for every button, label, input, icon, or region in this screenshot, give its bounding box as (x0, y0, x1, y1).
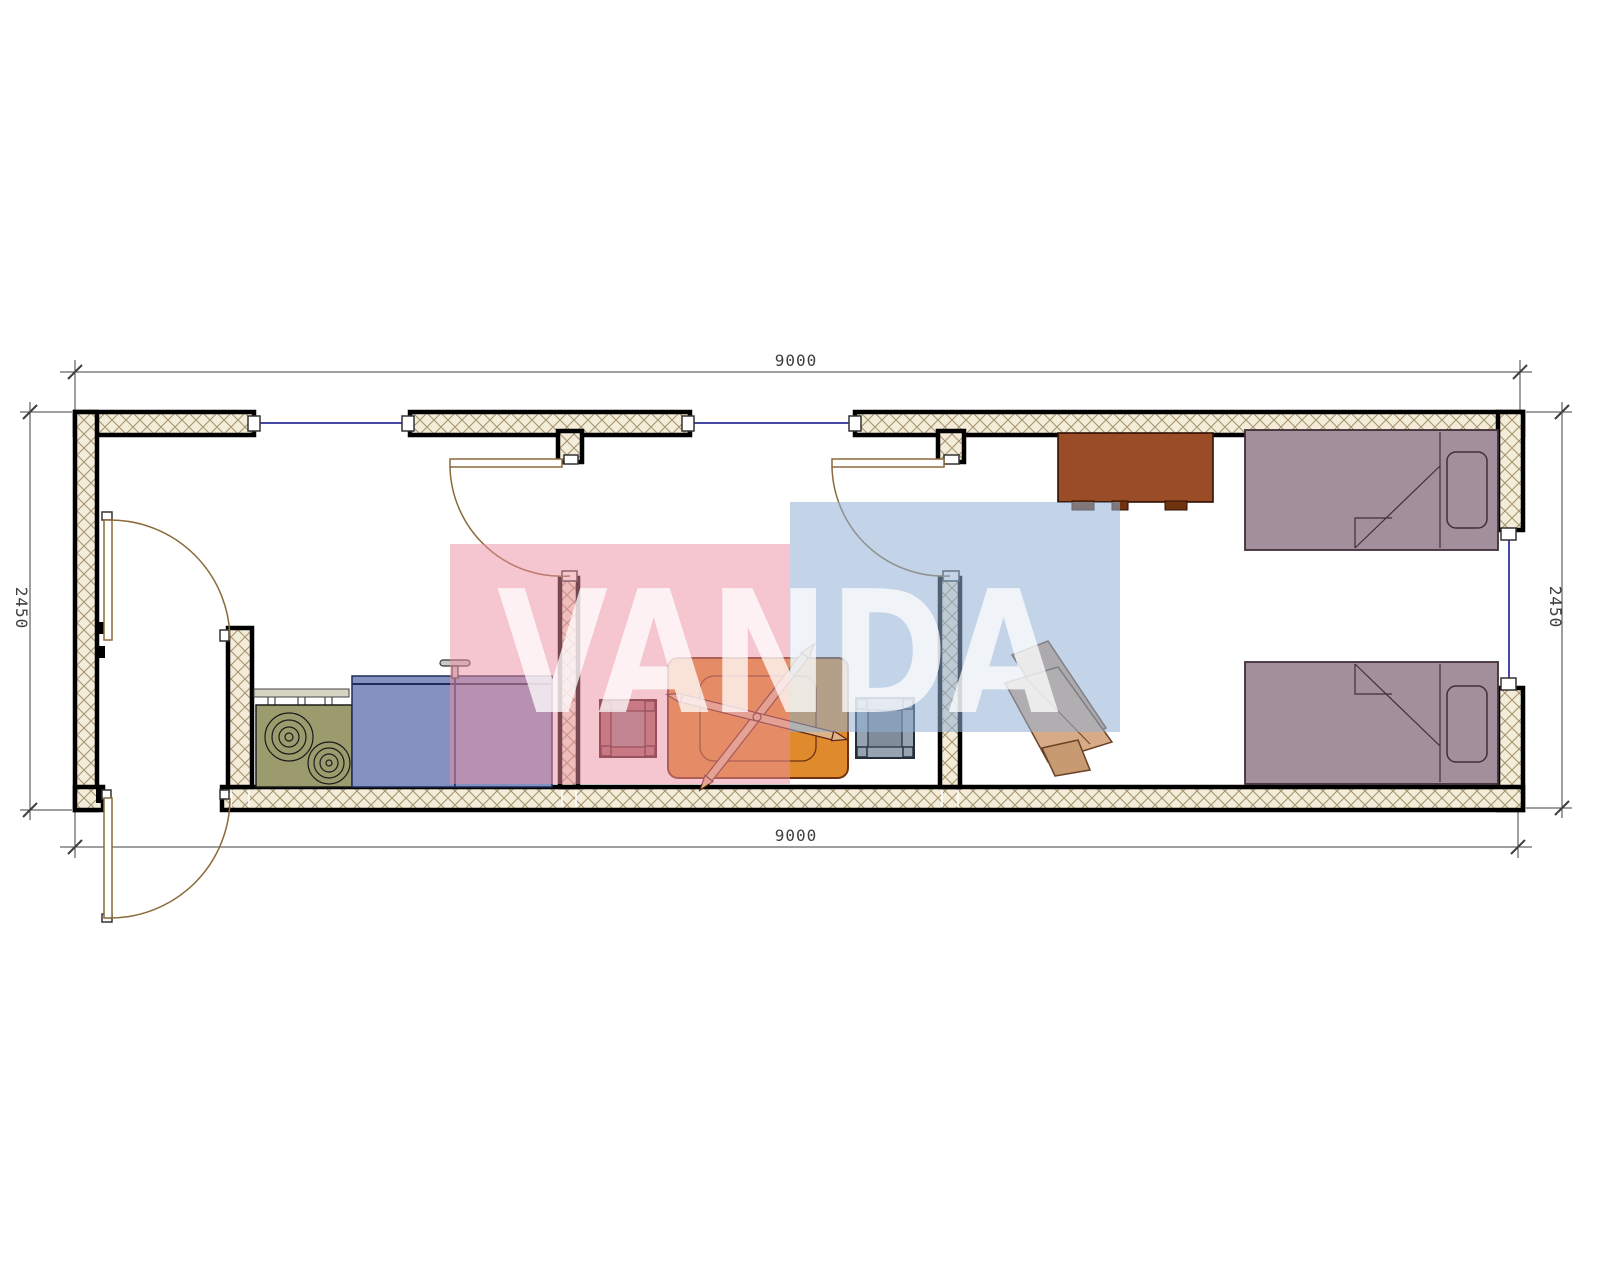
pillow (1447, 686, 1487, 762)
exterior-wall-top-a (75, 412, 254, 435)
floor-plan-canvas: 9000 9000 2450 2450 (0, 0, 1600, 1280)
exterior-wall-top-b (410, 412, 690, 435)
partition-hall (228, 628, 252, 787)
exterior-wall-bottom (222, 787, 1523, 810)
wardrobe (1058, 433, 1213, 510)
kitchen-counter-sink (352, 676, 455, 787)
bed-bottom (1245, 662, 1498, 784)
dimension-label-left: 2450 (12, 587, 31, 630)
hall-door-arc (110, 520, 230, 640)
watermark-text: VANDA (497, 555, 1059, 753)
hall-door-leaf (104, 520, 112, 640)
dimension-label-right: 2450 (1546, 586, 1565, 629)
middle-room-door-leaf (450, 459, 562, 467)
entry-door-arc (110, 798, 230, 918)
dimension-label-bottom: 9000 (775, 826, 818, 845)
exterior-wall-right-upper (1498, 412, 1523, 530)
floor-plan-page: 9000 9000 2450 2450 (0, 0, 1600, 1280)
bedroom-door-leaf (832, 459, 944, 467)
pillow (1447, 452, 1487, 528)
exterior-wall-left (75, 412, 97, 810)
bed-top (1245, 430, 1498, 550)
watermark: VANDA (450, 502, 1120, 784)
kitchen-vent (254, 689, 349, 706)
stove (256, 705, 352, 787)
entry-door-leaf (104, 798, 112, 918)
dimension-label-top: 9000 (775, 351, 818, 370)
